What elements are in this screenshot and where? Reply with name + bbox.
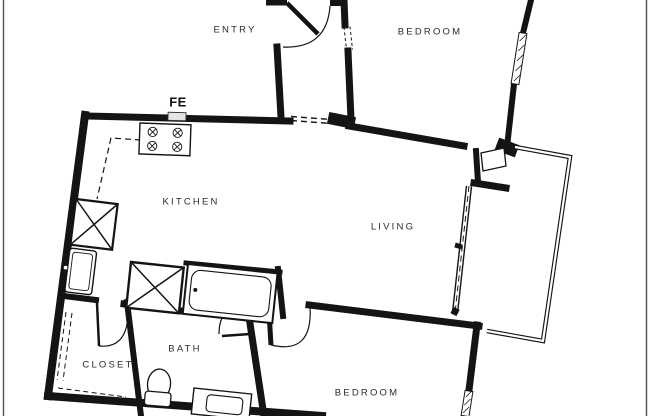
closet-shelves — [57, 312, 126, 397]
room-label-kitchen: KITCHEN — [162, 197, 219, 208]
living-window-wall — [452, 186, 472, 313]
kitchen-counter — [97, 138, 141, 199]
walls — [48, 0, 531, 416]
closet-door — [97, 303, 128, 346]
floor-plan-drawing — [0, 0, 652, 416]
room-label-closet: CLOSET — [82, 360, 133, 371]
room-label-bedroom-bottom: BEDROOM — [335, 388, 400, 399]
balcony — [487, 147, 570, 341]
toilet — [144, 368, 173, 407]
room-label-bedroom-top: BEDROOM — [398, 27, 463, 38]
bedroom-top-window — [511, 32, 527, 84]
bedroom-bottom-window — [461, 390, 473, 416]
washer-dryer — [126, 262, 184, 313]
kitchen-opening-dashes — [291, 117, 331, 124]
room-label-living: LIVING — [371, 222, 415, 233]
bath-vanity — [191, 388, 251, 416]
stove — [139, 123, 191, 156]
bedroom-top-door — [481, 148, 506, 171]
bathtub — [183, 264, 278, 323]
fire-extinguisher-cabinet — [168, 112, 186, 120]
refrigerator — [70, 199, 117, 250]
entry-door — [283, 3, 330, 47]
floor-plan-image: ENTRY BEDROOM FE KITCHEN LIVING BATH CLO… — [0, 0, 652, 416]
fire-extinguisher-label: FE — [169, 95, 187, 110]
room-label-entry: ENTRY — [213, 25, 256, 36]
hallway-window — [344, 27, 353, 51]
room-label-bath: BATH — [168, 344, 201, 355]
